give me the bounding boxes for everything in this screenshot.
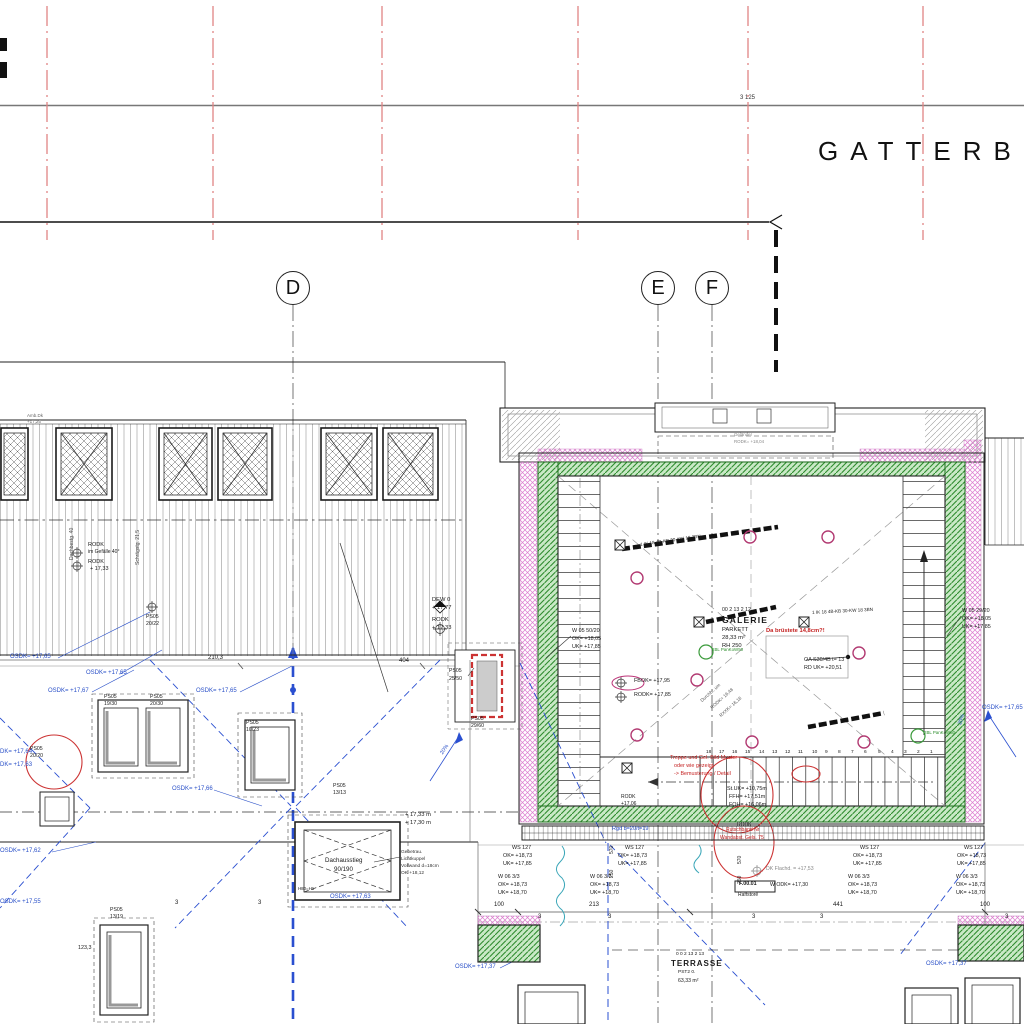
window-label: OK= +18,73 [590, 883, 619, 888]
rodk-label: +17,06 [621, 802, 636, 807]
room-name: TERRASSE [671, 960, 723, 968]
window-label: UK= +18,70 [956, 891, 985, 896]
tread-number: 17 [719, 751, 724, 756]
dim-rot: 570 [610, 846, 615, 854]
street-name: GATTERBU [818, 138, 1024, 164]
beam-note: RD UK= +20,51 [804, 666, 842, 671]
tread-number: 12 [785, 751, 790, 756]
room-name: GALERIE [722, 616, 768, 625]
hatch-label: H80=H1 [298, 887, 314, 891]
red-note: -> Bemusterung / Detail [674, 772, 731, 777]
level-label: + 17,30 m [405, 821, 431, 827]
osdk-label: OSDK= +17,65 [982, 705, 1023, 711]
ps-label: 20/30 [150, 702, 163, 707]
osdk-label: OSDK= +17,55 [0, 899, 41, 905]
room-finish: PST2 0. [678, 971, 695, 976]
tread-number: 4 [891, 751, 894, 756]
osdk-label: OSDK= +17,37 [455, 964, 496, 970]
ps-label: 25/50 [449, 677, 462, 682]
red-note: Treppe und Gel. Bild Muster [670, 756, 737, 761]
window-label: UK= +17,85 [503, 862, 532, 867]
grid-bubble-D: D [276, 271, 310, 305]
tread-number: 18 [706, 751, 711, 756]
window-label: W 05 50/20 [572, 629, 600, 634]
rodk-label: + 17,33 [90, 567, 109, 573]
osdk-label: OSDK= +17,37 [926, 961, 967, 967]
window-label: OK= +18,73 [853, 854, 882, 859]
stair-level: FOH= +16,06m [729, 803, 766, 808]
ps-label: 10/23 [246, 728, 259, 733]
hatch-label: 90/190 [334, 867, 353, 873]
hatch-label: Dachausstieg [325, 858, 363, 864]
green-note: 2BL PanKoW50 [924, 731, 955, 735]
ps-label: PS05 [333, 784, 346, 789]
window-label: W 06 3/3 [848, 875, 870, 880]
tread-number: 1 [930, 751, 933, 756]
ps-label: PS05 [110, 908, 123, 913]
ps-label: PS05 [104, 695, 117, 700]
railing-note: Rgd b=20/t=19 [612, 827, 648, 833]
tread-number: 13 [772, 751, 777, 756]
tread-number: 14 [759, 751, 764, 756]
osdk-label: OSDK= +17,65 [86, 670, 127, 676]
room-finish: PARKETT [722, 628, 748, 634]
stair-level: FFH= +17,51m [729, 795, 765, 800]
railing-gray: Geländer [734, 433, 752, 437]
dim-top: 3 125 [740, 95, 755, 101]
tread-number: 9 [825, 751, 828, 756]
room-area: 63,33 m² [678, 979, 698, 984]
rodk-label: + 17,33 [432, 626, 452, 632]
redline-note: Da brüstete 14,8cm?! [766, 629, 825, 635]
beam-label: 1 IK 18 4B-KB 30-KW 18 3BN [812, 608, 873, 616]
room-number: 00 2 13 2 12 [722, 608, 751, 613]
level-label: + 17,33 m [405, 813, 431, 819]
rodk-label: RODK [432, 618, 449, 624]
rodk-label: RODK [621, 795, 635, 800]
ps-label: 20/22 [146, 622, 159, 627]
kuppel-note: OK +18,12 [401, 872, 424, 877]
red-note: Rutschband Nr [726, 828, 759, 833]
floor-plan-canvas: GATTERBU3 125Amb.Dk+17,25RODKim Gefälle … [0, 0, 1024, 1024]
ps-label: 29/60 [471, 724, 484, 729]
green-note: 2BL PanKoW50 [712, 648, 743, 652]
window-label: OK= +18,73 [957, 854, 986, 859]
ps-label: PS05 [30, 747, 43, 752]
window-label: WS 127 [964, 846, 983, 851]
ps-label: 13/13 [333, 791, 346, 796]
level-label: RODK= +17,85 [634, 693, 671, 698]
ps-label: 19/30 [104, 702, 117, 707]
tread-number: 6 [864, 751, 867, 756]
ps-label: PS05 [246, 721, 259, 726]
dew-label: + 17,77 [432, 606, 452, 612]
tread-number: 15 [745, 751, 750, 756]
annotation-layer: GATTERBU3 125Amb.Dk+17,25RODKim Gefälle … [0, 0, 1024, 1024]
window-label: OK= +18,73 [503, 854, 532, 859]
railing-gray: RODK= +18,04 [734, 440, 764, 444]
ps-label: 20/20 [30, 754, 43, 759]
red-note: oder wie gezeigt [674, 764, 713, 769]
tread-number: 5 [878, 751, 881, 756]
room-number: 0 0 2 13 2 13 [676, 953, 704, 958]
window-label: UK= +17,85 [957, 862, 986, 867]
flat-roof-note: DK Flachd. = +17,53 [766, 867, 814, 872]
slope-label: 20% [958, 714, 967, 726]
rodk-label: RODK [88, 560, 104, 566]
dim-label: 210,3 [208, 655, 223, 661]
tread-number: 16 [732, 751, 737, 756]
dim-label: 100 [494, 902, 504, 908]
window-label: UK= +18,70 [848, 891, 877, 896]
window-label: OK= +18,73 [498, 883, 527, 888]
dim-tick: 3 [820, 914, 823, 920]
rafter-note: Schrägstg. 21,5 [136, 530, 141, 565]
window-label: OK= +18,05 [572, 637, 601, 642]
tread-number: 7 [851, 751, 854, 756]
window-label: OK= +18,73 [956, 883, 985, 888]
osdk-label: DK= +17,64 [0, 749, 32, 755]
kuppel-note: Lichtkuppel [401, 858, 425, 863]
tread-number: 3 [904, 751, 907, 756]
beam-label: 1 IK 18 4B-KB 30-KW 18 3BN [640, 535, 701, 548]
osdk-label: OSDK= +17,66 [172, 786, 213, 792]
grid-bubble-F: F [695, 271, 729, 305]
dim-rot: 250 [738, 876, 743, 884]
kuppel-note: Vollwand d=18cm [401, 865, 439, 870]
window-label: UK= +18,70 [590, 891, 619, 896]
dim-tick: 3 [752, 914, 755, 920]
room-area: 28,33 m² [722, 636, 745, 642]
beam-note: OA S30/4B t= 13 [804, 658, 844, 663]
osdk-label: OSDK= +17,63 [330, 894, 371, 900]
window-label: OK= +18,05 [962, 617, 991, 622]
stair-level: St.UK= +10,75m [727, 787, 767, 792]
osdk-label: OSDK= +17,65 [10, 654, 51, 660]
osdk-label: OSDK= +17,62 [0, 848, 41, 854]
roof-note: +17,25 [27, 420, 41, 425]
rodk-label: im Gefälle 40° [88, 550, 119, 555]
tread-number: 11 [798, 751, 803, 756]
window-label: W 05 29/20 [962, 609, 990, 614]
ps-label: 13/19 [110, 915, 123, 920]
rodk-label: RODK [88, 543, 104, 549]
dim-tick: 3 [1005, 914, 1008, 920]
window-label: UK= +17,85 [572, 645, 601, 650]
dim-tick: 3 [608, 914, 611, 920]
dim-rot: 250 [610, 870, 615, 878]
dim-label: 441 [833, 902, 843, 908]
door-tag: Raffstore [738, 893, 758, 898]
dew-label: DEW 0 [432, 598, 450, 604]
ps-label: PS05 [146, 615, 159, 620]
ps-label: PS05 [449, 669, 462, 674]
tread-number: 10 [812, 751, 817, 756]
level-label: FBOK= +17,95 [634, 679, 670, 684]
rafter-note: Dachbestg. 40 [70, 528, 75, 560]
tread-number: 8 [838, 751, 841, 756]
window-label: UK= +17,85 [618, 862, 647, 867]
window-label: WS 127 [625, 846, 644, 851]
window-label: OK= +18,73 [618, 854, 647, 859]
ps-label: PS05 [150, 695, 163, 700]
tread-number: 2 [917, 751, 920, 756]
dim-tick: 3 [538, 914, 541, 920]
window-label: OK= +18,73 [848, 883, 877, 888]
dim-tick: 3 [175, 900, 178, 906]
dim-label: 404 [399, 658, 409, 664]
window-label: WS 127 [512, 846, 531, 851]
dim-rot: 570 [738, 856, 743, 864]
slope-label: 20% [440, 744, 451, 756]
dim-label: 213 [589, 902, 599, 908]
grid-bubble-E: E [641, 271, 675, 305]
kuppel-note: Gebetrau. [401, 851, 422, 856]
window-label: UK= +17,85 [853, 862, 882, 867]
flat-roof-note: W ODK= +17,30 [770, 883, 808, 888]
window-label: UK= +17,85 [962, 625, 991, 630]
dim-tick: 3 [258, 900, 261, 906]
window-label: W 06 3/3 [956, 875, 978, 880]
dim-label: 123,3 [78, 946, 92, 951]
osdk-label: OSDK= +17,67 [48, 688, 89, 694]
window-label: WS 127 [860, 846, 879, 851]
window-label: UK= +18,70 [498, 891, 527, 896]
osdk-label: OSDK= +17,65 [196, 688, 237, 694]
dim-label: 100 [980, 902, 990, 908]
red-note: Wandabst. Gels. 75 [720, 836, 764, 841]
osdk-label: DK= +17,63 [0, 762, 32, 768]
window-label: W 06 3/3 [498, 875, 520, 880]
roof-note: Amb.Dk [27, 414, 43, 419]
ps-label: PS05 [471, 717, 484, 722]
